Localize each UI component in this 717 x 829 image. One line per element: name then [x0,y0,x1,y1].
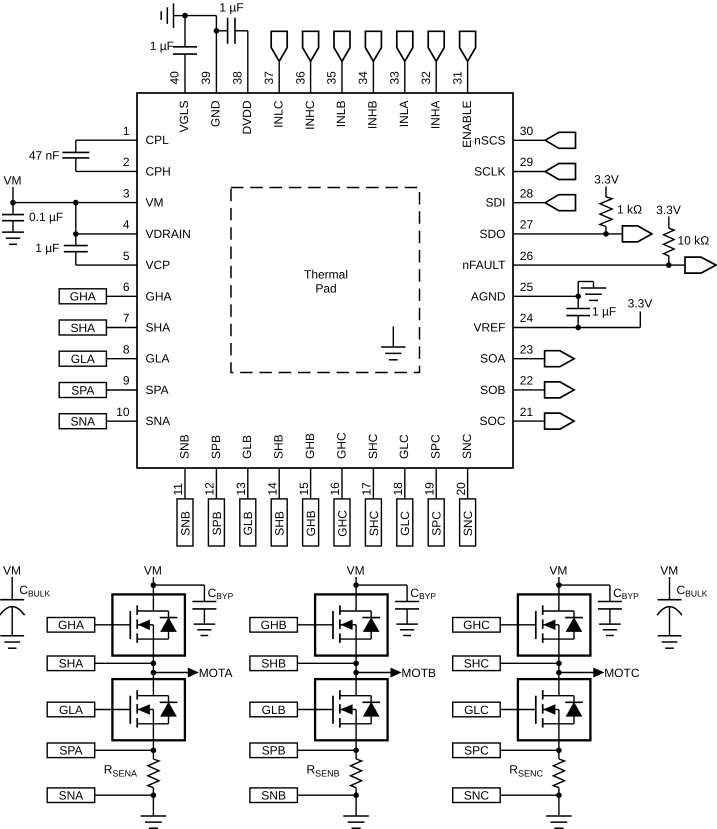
svg-text:SOA: SOA [480,352,505,366]
svg-text:INLC: INLC [271,100,285,128]
svg-text:47 nF: 47 nF [29,148,60,162]
svg-text:INLA: INLA [397,101,411,128]
svg-text:GLC: GLC [464,703,489,717]
svg-text:GLA: GLA [146,352,170,366]
svg-text:4: 4 [123,218,130,232]
svg-text:SCLK: SCLK [474,165,505,179]
svg-text:CBYP: CBYP [208,586,234,601]
svg-text:17: 17 [360,482,374,496]
svg-text:13: 13 [234,482,248,496]
svg-text:INHC: INHC [303,100,317,130]
svg-text:GND: GND [209,100,223,127]
svg-text:SPC: SPC [430,511,444,536]
svg-text:GHB: GHB [303,433,317,459]
svg-text:nSCS: nSCS [474,133,505,147]
svg-text:SPB: SPB [210,511,224,535]
svg-text:34: 34 [356,71,370,85]
svg-text:SPA: SPA [146,383,169,397]
svg-text:VM: VM [144,564,162,578]
svg-text:GHB: GHB [261,618,287,632]
svg-text:10 kΩ: 10 kΩ [678,234,710,248]
svg-text:29: 29 [520,155,534,169]
svg-text:SDO: SDO [479,227,505,241]
svg-text:SHB: SHB [261,657,286,671]
svg-text:VM: VM [4,174,22,188]
svg-text:23: 23 [520,342,534,356]
svg-text:SNA: SNA [70,415,95,429]
svg-text:GLB: GLB [241,511,255,535]
svg-text:SNB: SNB [178,511,192,536]
svg-text:SPA: SPA [59,744,82,758]
svg-text:25: 25 [520,280,534,294]
svg-text:CBULK: CBULK [677,583,708,598]
svg-text:SNA: SNA [59,789,84,803]
svg-text:nFAULT: nFAULT [462,258,506,272]
svg-text:21: 21 [520,405,534,419]
svg-text:SHB: SHB [272,434,286,459]
svg-text:GHC: GHC [335,510,349,537]
svg-text:MOTA: MOTA [199,666,233,680]
svg-text:GHA: GHA [146,289,172,303]
svg-text:2: 2 [123,155,130,169]
svg-text:37: 37 [262,71,276,85]
svg-text:VM: VM [3,564,21,578]
svg-text:INHA: INHA [428,101,442,130]
svg-text:GLA: GLA [59,703,83,717]
svg-text:SNC: SNC [464,789,490,803]
svg-text:19: 19 [422,482,436,496]
svg-text:GHC: GHC [463,618,490,632]
svg-text:39: 39 [199,71,213,85]
svg-text:GHC: GHC [334,432,348,459]
svg-text:SPB: SPB [262,744,286,758]
svg-text:CBYP: CBYP [410,586,436,601]
svg-text:INLB: INLB [334,101,348,128]
svg-text:1 µF: 1 µF [219,1,243,15]
svg-text:27: 27 [520,218,534,232]
svg-text:1 µF: 1 µF [150,39,174,53]
svg-text:3.3V: 3.3V [656,203,681,217]
svg-text:24: 24 [520,311,534,325]
svg-text:16: 16 [328,482,342,496]
svg-text:GLA: GLA [71,352,95,366]
svg-text:ENABLE: ENABLE [460,101,474,148]
svg-text:15: 15 [297,482,311,496]
svg-text:VM: VM [549,564,567,578]
svg-text:VM: VM [347,564,365,578]
svg-text:SOC: SOC [479,414,505,428]
svg-text:SHA: SHA [146,321,171,335]
svg-text:SNB: SNB [261,789,286,803]
svg-text:SOB: SOB [480,383,505,397]
svg-text:SHA: SHA [70,321,95,335]
svg-text:5: 5 [123,249,130,263]
svg-text:GLC: GLC [397,434,411,459]
svg-text:10: 10 [116,405,130,419]
svg-text:DVDD: DVDD [240,100,254,134]
svg-text:Thermal: Thermal [304,268,348,282]
svg-text:GLB: GLB [262,703,286,717]
svg-text:6: 6 [123,280,130,294]
svg-text:7: 7 [123,311,130,325]
svg-text:SHA: SHA [59,657,84,671]
svg-text:CBYP: CBYP [613,586,639,601]
svg-text:VCP: VCP [146,258,171,272]
svg-text:RSENB: RSENB [307,763,340,779]
svg-text:0.1 µF: 0.1 µF [29,210,63,224]
svg-text:11: 11 [171,483,185,496]
svg-text:RSENA: RSENA [104,763,137,779]
svg-text:SPA: SPA [71,383,94,397]
svg-text:VREF: VREF [473,321,505,335]
svg-text:CBULK: CBULK [19,583,50,598]
svg-text:SDI: SDI [485,196,505,210]
svg-text:GLB: GLB [240,435,254,459]
svg-text:SPC: SPC [464,744,489,758]
svg-text:VM: VM [660,564,678,578]
svg-text:SHC: SHC [367,510,381,536]
svg-text:CPH: CPH [146,164,171,178]
svg-text:SNB: SNB [177,434,191,459]
svg-text:32: 32 [419,71,433,85]
svg-text:12: 12 [203,482,217,496]
svg-text:AGND: AGND [471,289,506,303]
svg-text:3.3V: 3.3V [594,173,619,187]
svg-text:SNC: SNC [460,433,474,459]
svg-text:30: 30 [520,124,534,138]
svg-text:SHC: SHC [464,657,490,671]
svg-text:9: 9 [123,374,130,388]
svg-text:1 kΩ: 1 kΩ [617,203,642,217]
svg-text:Pad: Pad [315,282,336,296]
svg-text:SHB: SHB [273,511,287,536]
svg-text:26: 26 [520,249,534,263]
svg-text:GHB: GHB [304,510,318,536]
svg-text:VM: VM [146,196,164,210]
svg-text:GLC: GLC [398,511,412,536]
svg-text:38: 38 [231,71,245,85]
svg-text:33: 33 [388,71,402,85]
svg-text:SPB: SPB [209,435,223,459]
svg-text:31: 31 [450,71,464,85]
svg-text:INHB: INHB [366,101,380,130]
svg-text:3: 3 [123,186,130,200]
svg-text:35: 35 [325,71,339,85]
svg-text:40: 40 [168,71,182,85]
svg-text:20: 20 [454,482,468,496]
svg-text:1: 1 [123,124,130,138]
svg-text:1 µF: 1 µF [35,241,59,255]
svg-text:VGLS: VGLS [177,101,191,133]
svg-text:8: 8 [123,342,130,356]
svg-text:36: 36 [293,71,307,85]
svg-text:SHC: SHC [366,433,380,459]
svg-text:SNC: SNC [461,510,475,536]
svg-text:18: 18 [391,482,405,496]
svg-text:3.3V: 3.3V [628,297,653,311]
svg-text:GHA: GHA [58,618,84,632]
svg-text:28: 28 [520,186,534,200]
svg-text:14: 14 [265,482,279,496]
svg-text:VDRAIN: VDRAIN [146,227,191,241]
svg-text:22: 22 [520,374,534,388]
svg-text:CPL: CPL [146,133,170,147]
svg-text:GHA: GHA [70,290,96,304]
svg-text:RSENC: RSENC [509,763,543,779]
svg-text:SNA: SNA [146,414,171,428]
svg-text:MOTC: MOTC [604,666,640,680]
svg-text:SPC: SPC [429,434,443,459]
svg-text:1 µF: 1 µF [592,305,616,319]
svg-text:MOTB: MOTB [401,666,436,680]
